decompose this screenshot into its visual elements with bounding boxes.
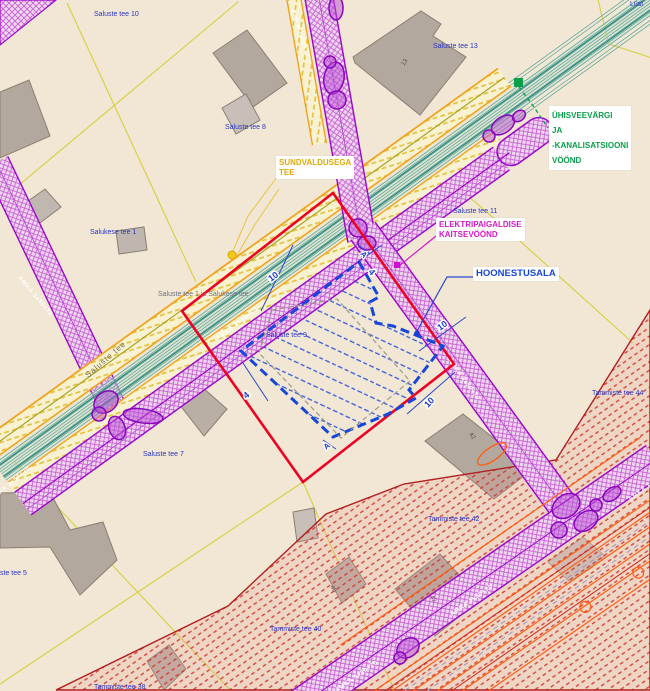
callout-elektri-line2: KAITSEVÖÖND: [439, 230, 522, 240]
callout-uvk-line1: ÜHISVEEVÄRGI: [552, 108, 628, 123]
callout-elektripaigaldise-kaitsevoond: ELEKTRIPAIGALDISE KAITSEVÖÖND: [436, 218, 525, 241]
callout-hoonestusala-label: HOONESTUSALA: [476, 269, 556, 279]
callout-sundvaldusega-line1: SUNDVALDUSEGA: [279, 158, 351, 168]
leader-dot-blue: [414, 330, 419, 335]
callout-uvk-line4: VÖÖND: [552, 153, 628, 168]
detail-plan-map: AMKA 3x50+70 AMKA 3x50+70 AMKA 3x50+70 A…: [0, 0, 650, 691]
callout-sundvaldusega-tee: SUNDVALDUSEGA TEE: [276, 156, 354, 179]
callout-uvk-line2: JA: [552, 123, 628, 138]
leader-dot-magenta: [394, 262, 400, 268]
callout-elektri-line1: ELEKTRIPAIGALDISE: [439, 220, 522, 230]
water-node-marker: [514, 78, 523, 87]
callout-sundvaldusega-line2: TEE: [279, 168, 351, 178]
callout-hoonestusala: HOONESTUSALA: [473, 267, 559, 281]
callout-uvk-line3: -KANALISATSIOONI: [552, 138, 628, 153]
callout-uhisveevargi-voond: ÜHISVEEVÄRGI JA -KANALISATSIOONI VÖÖND: [549, 106, 631, 170]
map-canvas: AMKA 3x50+70 AMKA 3x50+70 AMKA 3x50+70 A…: [0, 0, 650, 691]
leader-dot-yellow: [228, 251, 236, 259]
